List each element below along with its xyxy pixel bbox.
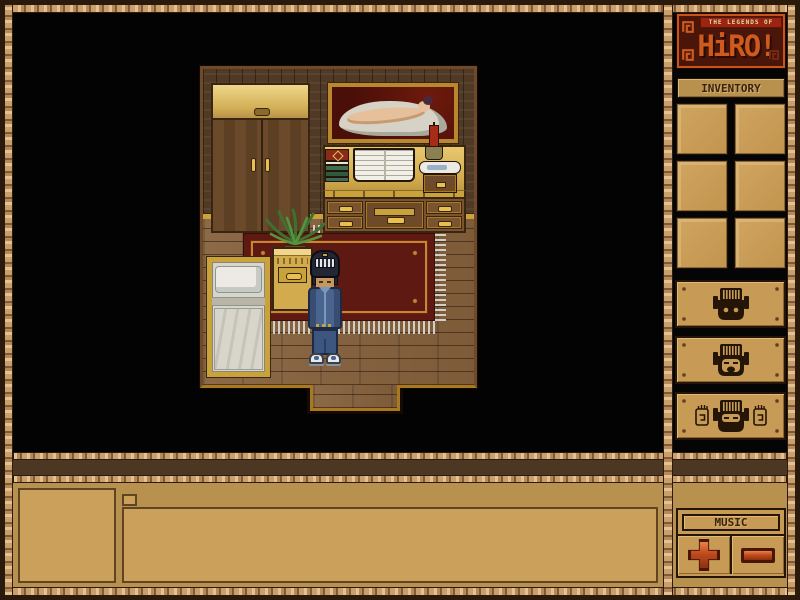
wardrobe-top — [211, 83, 310, 120]
drawer[interactable] — [327, 201, 363, 214]
drawer[interactable] — [426, 201, 462, 214]
action-button-face-1[interactable] — [675, 280, 786, 328]
small-chest — [423, 174, 457, 193]
game-viewport[interactable] — [13, 13, 663, 452]
helmet-face-eyes-open-icon — [711, 287, 751, 321]
action-button-face-3[interactable] — [675, 392, 786, 440]
stacked-books[interactable] — [325, 149, 349, 182]
pillow — [215, 266, 262, 293]
helmet-grille — [315, 258, 335, 268]
action-button-face-2[interactable] — [675, 336, 786, 384]
inventory-label: INVENTORY — [701, 82, 761, 95]
music-label: MUSIC — [714, 516, 747, 529]
spiral-ornament-icon — [769, 50, 779, 60]
blanket-fold — [212, 297, 265, 306]
music-buttons — [678, 534, 784, 574]
inventory-grid — [676, 103, 786, 269]
drawer[interactable] — [327, 216, 363, 229]
drawer[interactable] — [426, 216, 462, 229]
music-volume-down-button[interactable] — [730, 536, 784, 574]
music-panel: MUSIC — [676, 508, 786, 578]
teal-book — [325, 177, 349, 182]
inventory-slot[interactable] — [734, 217, 786, 269]
red-book — [325, 149, 349, 161]
helmet-crest — [322, 253, 328, 257]
frame-rope-right — [787, 4, 796, 596]
spiral-ornament-icon — [682, 49, 694, 61]
inventory-slot[interactable] — [676, 160, 728, 212]
desk-drawers — [323, 197, 466, 233]
sidebar-divider-rope — [663, 4, 673, 596]
player-helmet — [310, 250, 340, 278]
candle-pot — [425, 146, 443, 160]
rug-fringe — [435, 234, 446, 321]
inventory-slot[interactable] — [734, 160, 786, 212]
nightstand-trim — [277, 258, 308, 264]
desk[interactable] — [323, 145, 466, 233]
south-doorway[interactable] — [310, 385, 400, 411]
portrait-box — [18, 488, 116, 583]
game-logo: THE LEGENDS OF HiRO! — [677, 14, 785, 68]
wardrobe-handle — [251, 158, 256, 172]
music-header: MUSIC — [682, 514, 780, 531]
nightstand-drawer[interactable] — [278, 267, 307, 283]
helmet-face-mouth-open-icon — [711, 343, 751, 377]
frame-rope-top — [4, 4, 796, 13]
blanket — [214, 308, 263, 370]
player-character[interactable] — [305, 250, 345, 366]
spiral-ornament-icon — [682, 21, 694, 33]
minus-icon — [741, 548, 775, 563]
bottle-on-chest[interactable] — [419, 161, 463, 195]
inventory-slot[interactable] — [734, 103, 786, 155]
plus-icon — [688, 539, 720, 571]
action-button-column — [675, 280, 786, 440]
bedroom-room — [200, 66, 477, 388]
helmet-face-hands-icon — [695, 399, 767, 433]
candle[interactable] — [425, 125, 443, 165]
candle-wax — [429, 125, 439, 147]
wardrobe-handle — [265, 158, 270, 172]
message-box[interactable] — [122, 507, 658, 583]
message-box-tab[interactable] — [122, 494, 137, 506]
message-bottle — [419, 161, 461, 174]
player-shoe — [326, 353, 341, 364]
painting-figure-hair — [423, 96, 433, 105]
open-book[interactable] — [353, 148, 415, 182]
bed[interactable] — [207, 257, 270, 377]
game-window: THE LEGENDS OF HiRO! INVENTORY — [0, 0, 800, 600]
inventory-slot[interactable] — [676, 103, 728, 155]
frame-rope-left — [4, 4, 13, 596]
inventory-slot[interactable] — [676, 217, 728, 269]
inventory-header: INVENTORY — [677, 78, 785, 98]
music-volume-up-button[interactable] — [678, 536, 730, 574]
player-pants — [312, 329, 338, 355]
logo-title: HiRO! — [689, 26, 783, 66]
frame-rope-bottom — [4, 587, 796, 596]
center-drawer[interactable] — [365, 201, 424, 229]
player-shoe — [309, 353, 324, 364]
